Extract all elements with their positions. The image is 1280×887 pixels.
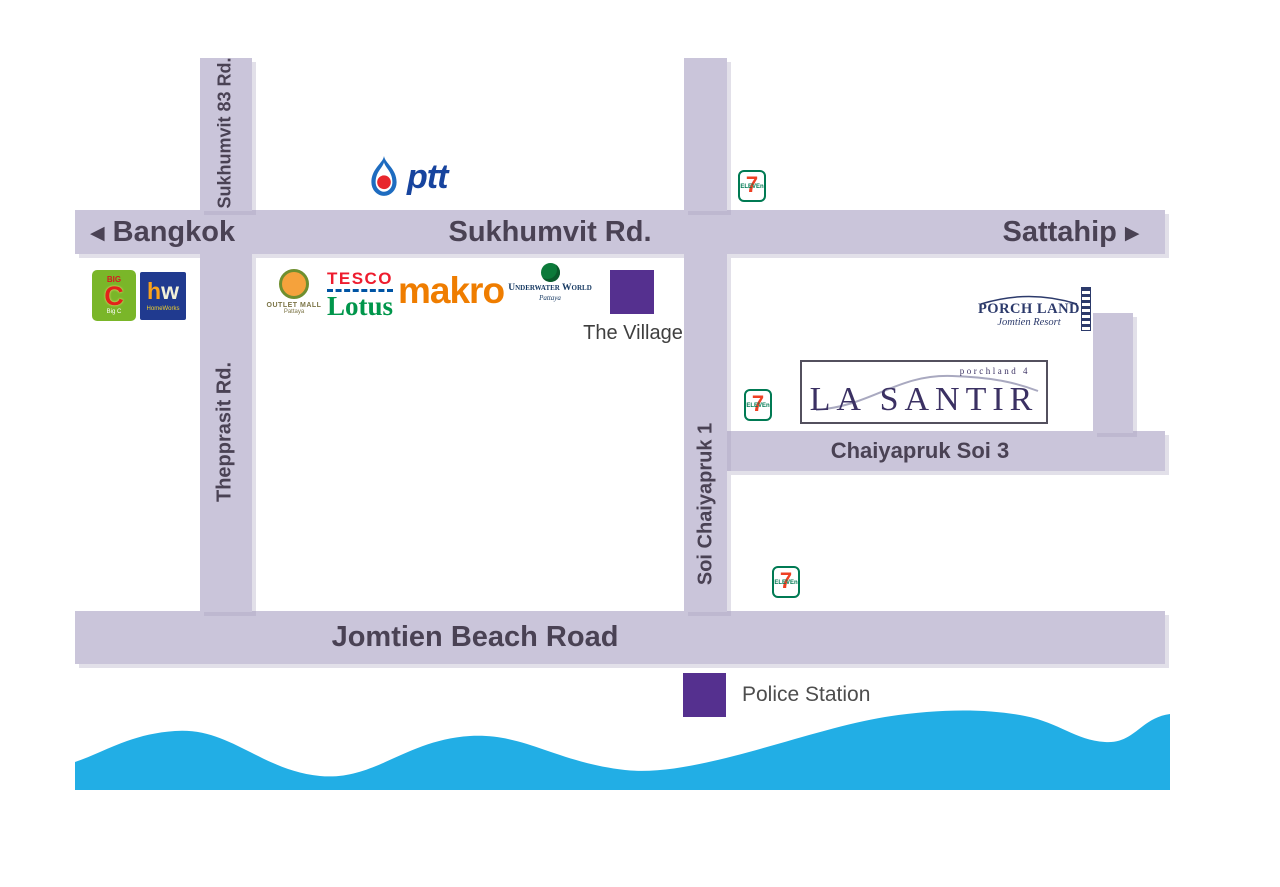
tesco-wordmark: TESCO xyxy=(327,270,393,292)
road-porchland-soi xyxy=(1093,313,1133,433)
homeworks-letters: hw xyxy=(147,281,179,304)
underwater-world-logo: Underwater World Pattaya xyxy=(500,263,600,303)
west-arrow-icon: ◀ xyxy=(90,222,105,243)
sukhumvit-road-label: Sukhumvit Rd. xyxy=(420,210,680,254)
the-village-marker xyxy=(610,270,654,314)
lighthouse-icon xyxy=(1081,287,1091,331)
homeworks-w: w xyxy=(161,278,179,304)
sukhumvit-83-road-label: Sukhumvit 83 Rd. xyxy=(215,57,236,208)
seven-eleven-marker-lasantir: 7 ELEVEn xyxy=(744,389,772,421)
la-santir-tagline: porchland 4 xyxy=(960,367,1030,376)
sukhumvit-road-name: Sukhumvit Rd. xyxy=(448,216,651,249)
outlet-mall-icon xyxy=(279,269,309,299)
direction-sattahip: Sattahip ▶ xyxy=(985,210,1157,254)
road-soi-chaiyapruk-1-north xyxy=(684,58,727,211)
ptt-station-marker: ptt xyxy=(366,156,447,198)
tesco-lotus-logo: TESCO Lotus xyxy=(320,270,400,320)
porch-land-logo: PORCH LAND Jomtien Resort xyxy=(968,293,1090,329)
homeworks-logo: hw HomeWorks xyxy=(140,272,186,320)
la-santir-sign: porchland 4 LA SANTIR xyxy=(800,360,1048,424)
ptt-wordmark: ptt xyxy=(407,160,447,194)
outlet-mall-subtext: Pattaya xyxy=(262,309,326,316)
bangkok-label: Bangkok xyxy=(113,216,235,249)
thepprasit-road-label: Thepprasit Rd. xyxy=(214,362,237,502)
seven-eleven-word: ELEVEn xyxy=(740,184,763,190)
road-jomtien-beach xyxy=(75,611,1165,664)
outlet-mall-logo: OUTLET MALL Pattaya xyxy=(262,269,326,316)
east-arrow-icon: ▶ xyxy=(1125,222,1140,243)
location-map: ◀ Bangkok Sukhumvit Rd. Sattahip ▶ Chaiy… xyxy=(0,0,1280,887)
seven-eleven-word: ELEVEn xyxy=(746,403,769,409)
sea-wave xyxy=(75,700,1170,792)
sattahip-label: Sattahip xyxy=(1002,216,1116,249)
ptt-flame-icon xyxy=(366,156,402,198)
chaiyapruk-soi-3-label: Chaiyapruk Soi 3 xyxy=(790,431,1050,471)
lotus-wordmark: Lotus xyxy=(320,293,400,320)
big-c-bottom-text: Big C xyxy=(107,309,122,315)
la-santir-name: LA SANTIR xyxy=(802,383,1046,417)
underwater-world-name: Underwater World xyxy=(500,284,600,294)
soi-chaiyapruk-1-label: Soi Chaiyapruk 1 xyxy=(695,423,718,585)
jomtien-beach-road-name: Jomtien Beach Road xyxy=(332,621,619,654)
direction-bangkok: ◀ Bangkok xyxy=(90,210,235,254)
outlet-mall-name: OUTLET MALL xyxy=(262,302,326,309)
chaiyapruk-soi-3-name: Chaiyapruk Soi 3 xyxy=(831,438,1010,464)
makro-logo: makro xyxy=(398,272,504,309)
the-village-label: The Village xyxy=(578,322,688,345)
big-c-logo: BIG C Big C xyxy=(92,270,136,321)
jomtien-beach-road-label: Jomtien Beach Road xyxy=(340,611,610,664)
underwater-world-globe-icon xyxy=(541,263,560,282)
seven-eleven-word: ELEVEn xyxy=(774,580,797,586)
porch-land-name: PORCH LAND xyxy=(968,302,1090,317)
porch-land-subtext: Jomtien Resort xyxy=(968,317,1090,330)
underwater-world-subtext: Pattaya xyxy=(500,294,600,303)
seven-eleven-marker-north: 7 ELEVEn xyxy=(738,170,766,202)
big-c-letter: C xyxy=(104,284,124,310)
seven-eleven-marker-south: 7 ELEVEn xyxy=(772,566,800,598)
homeworks-subtext: HomeWorks xyxy=(147,306,180,312)
homeworks-h: h xyxy=(147,278,161,304)
